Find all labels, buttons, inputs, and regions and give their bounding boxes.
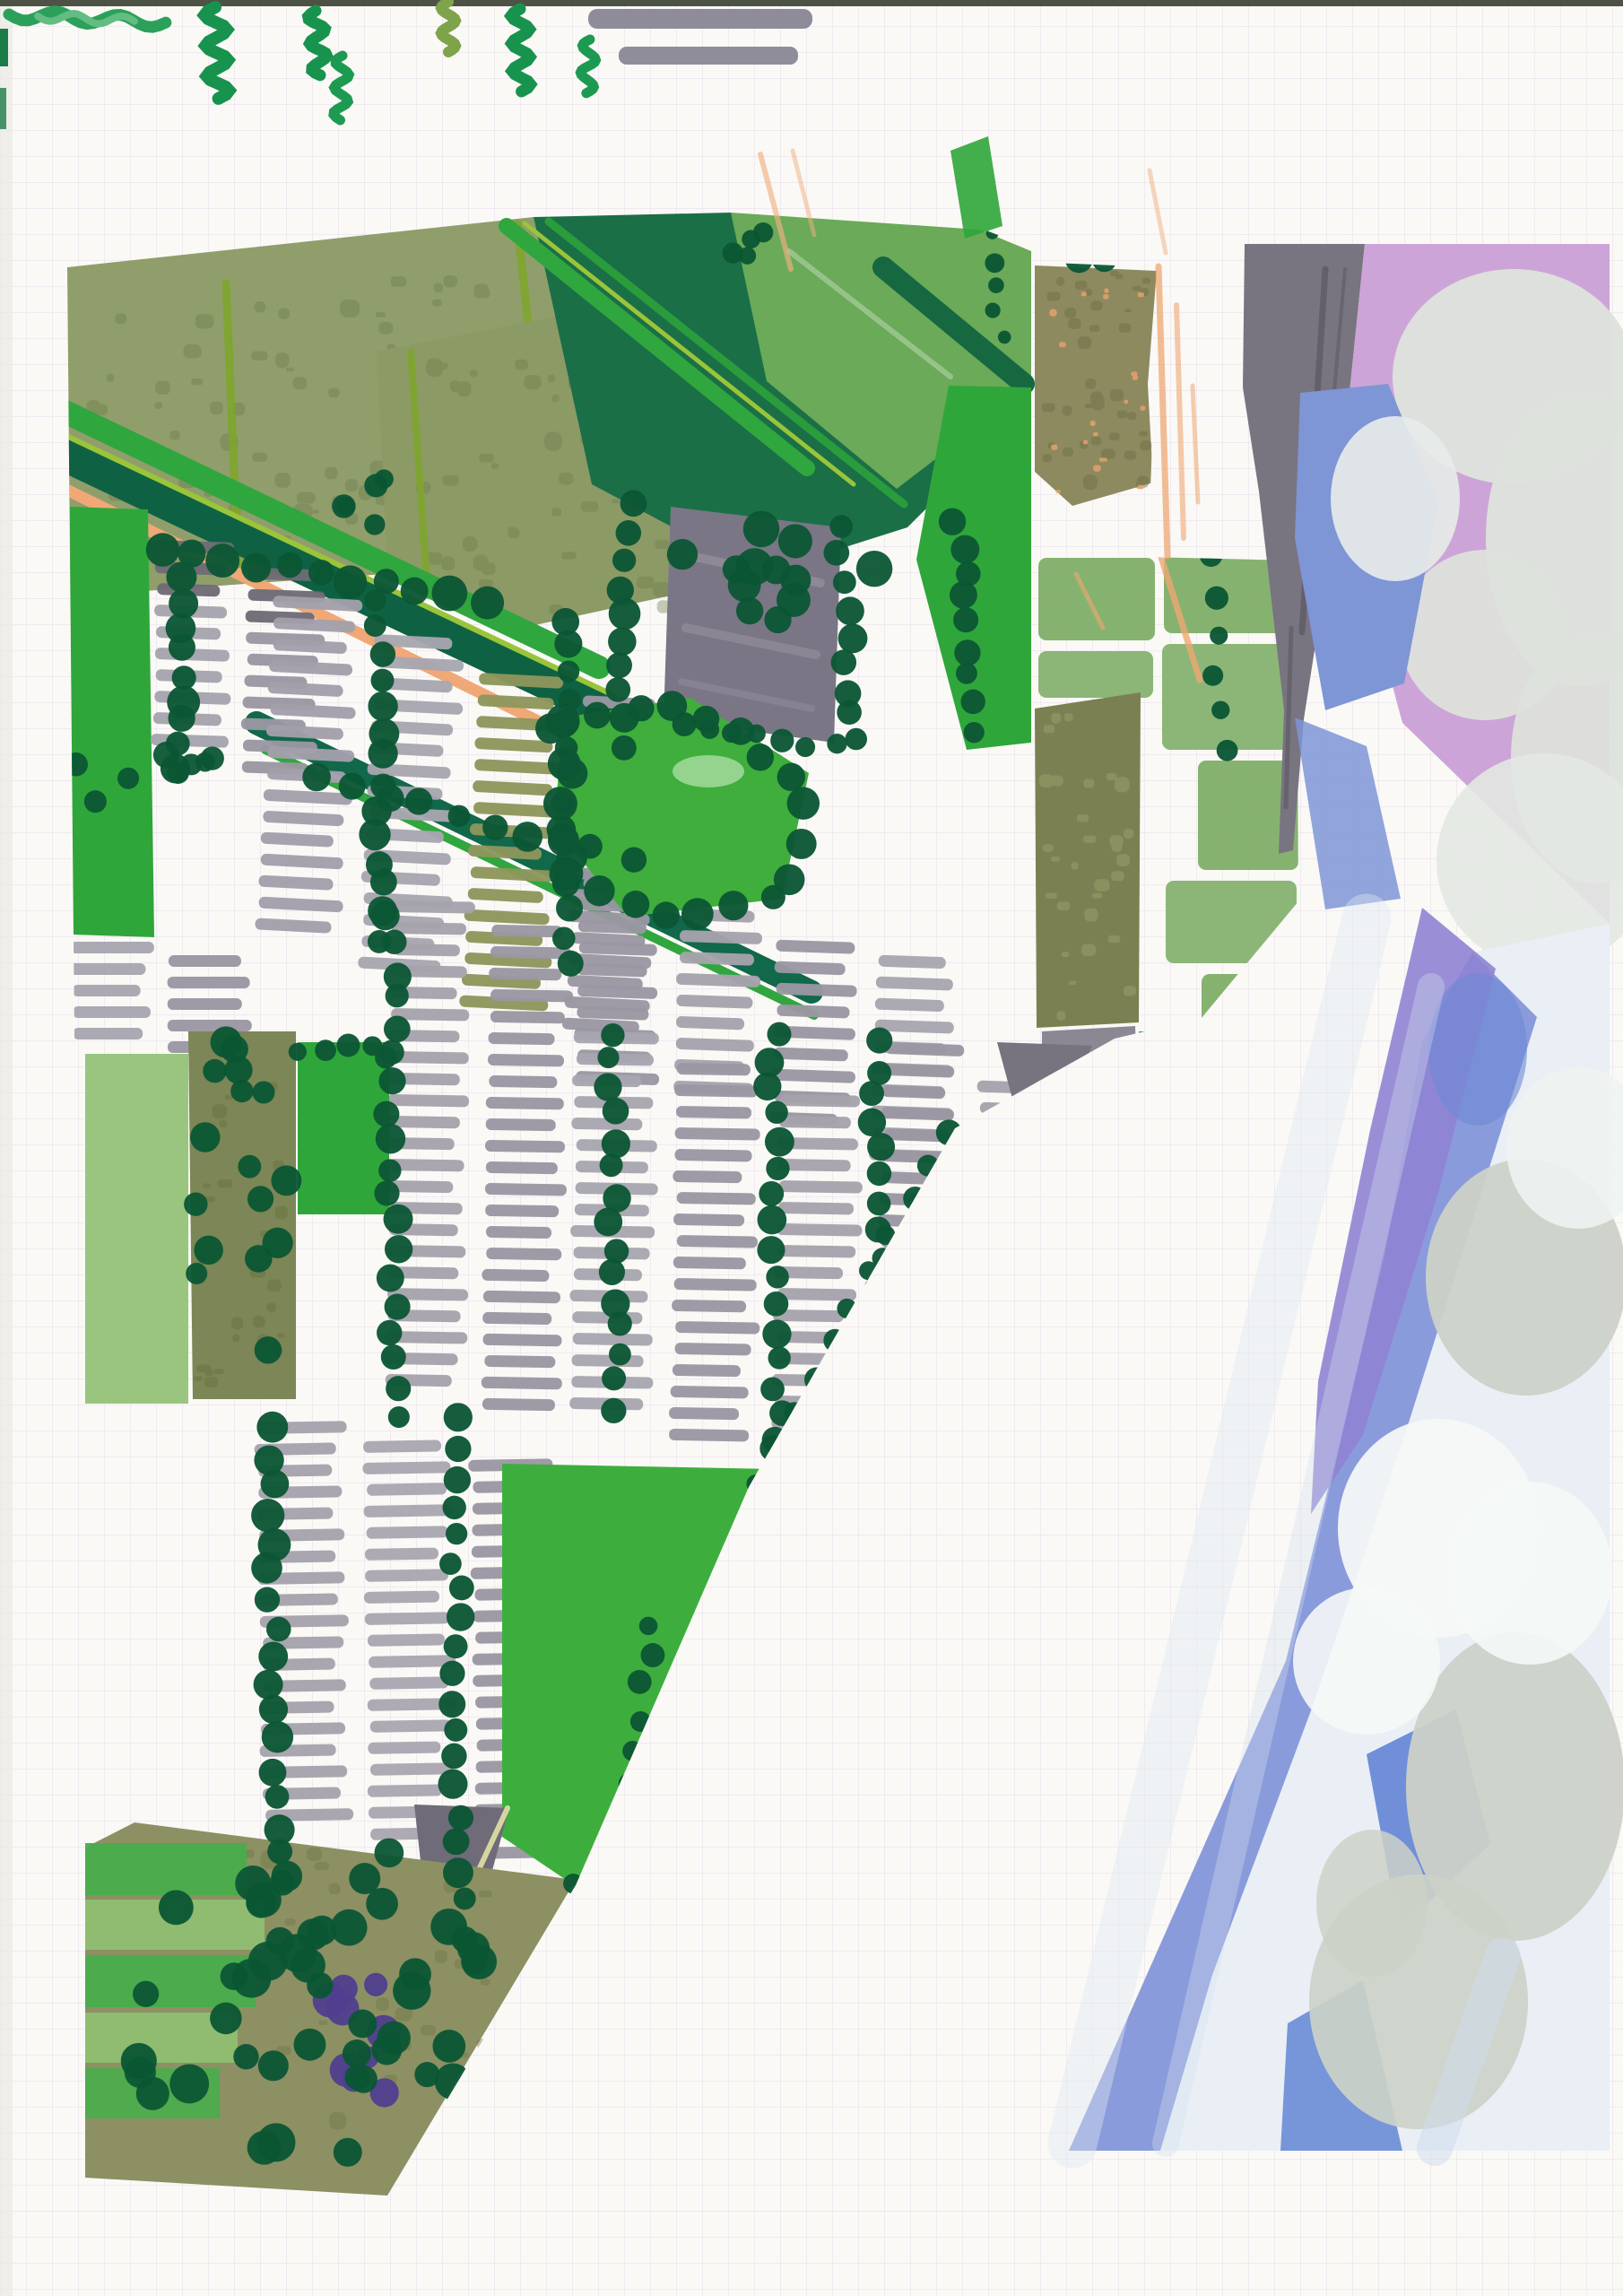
bright-strip-left — [70, 507, 154, 937]
sage-block-7 — [1038, 651, 1153, 698]
painting-svg — [0, 0, 1623, 2296]
cloud-over-blue — [1331, 416, 1460, 581]
scanned-page — [0, 0, 1623, 2296]
pen-test-mark-a — [0, 29, 8, 66]
sage-block-1 — [1038, 558, 1155, 640]
water-cloud-beige-4 — [1316, 1830, 1428, 1977]
gray-bar-1 — [588, 9, 812, 29]
water-puff-3 — [1447, 1482, 1612, 1665]
squiggle-2 — [204, 7, 229, 99]
sage-block-3 — [1162, 644, 1298, 750]
top-margin-rule — [0, 0, 1623, 6]
field-lightgreen-left — [85, 1054, 188, 1404]
pen-test-mark-b — [0, 88, 6, 129]
green-strip-bl-1 — [85, 1843, 247, 1895]
canopy-highlight — [673, 755, 744, 787]
left-page-edge — [0, 0, 13, 2296]
water-puff-2 — [1293, 1587, 1440, 1735]
squiggle-6 — [511, 9, 530, 91]
gray-bar-2 — [619, 47, 798, 65]
water-deep-3 — [1428, 973, 1527, 1126]
